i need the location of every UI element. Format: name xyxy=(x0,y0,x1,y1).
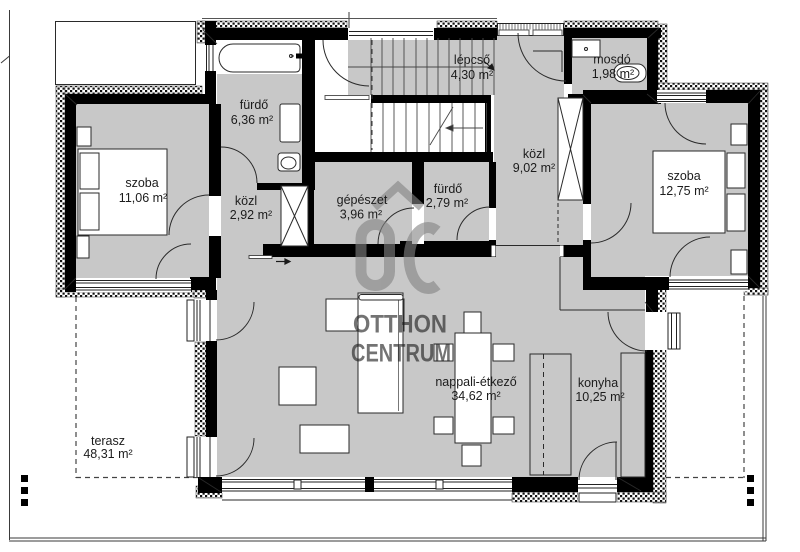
svg-text:fürdő: fürdő xyxy=(240,98,269,112)
svg-text:2,79 m²: 2,79 m² xyxy=(426,196,468,210)
svg-text:gépészet: gépészet xyxy=(337,193,388,207)
svg-text:1,98 m²: 1,98 m² xyxy=(592,67,634,81)
svg-text:OTTHON: OTTHON xyxy=(353,311,447,339)
svg-text:közl: közl xyxy=(523,147,545,161)
svg-text:konyha: konyha xyxy=(578,376,618,390)
svg-text:6,36 m²: 6,36 m² xyxy=(231,113,273,127)
svg-text:szoba: szoba xyxy=(125,176,158,190)
svg-text:nappali-étkező: nappali-étkező xyxy=(435,375,516,389)
svg-text:34,62 m²: 34,62 m² xyxy=(451,389,500,403)
svg-text:11,06 m²: 11,06 m² xyxy=(119,191,167,205)
svg-text:szoba: szoba xyxy=(667,169,700,183)
svg-text:közl: közl xyxy=(235,194,257,208)
svg-text:4,30 m²: 4,30 m² xyxy=(451,68,493,82)
svg-text:12,75 m²: 12,75 m² xyxy=(659,184,708,198)
svg-text:10,25 m²: 10,25 m² xyxy=(575,390,624,404)
svg-text:CENTRUM: CENTRUM xyxy=(351,340,451,368)
svg-text:9,02 m²: 9,02 m² xyxy=(513,161,555,175)
svg-text:mosdó: mosdó xyxy=(593,53,631,67)
svg-text:fürdő: fürdő xyxy=(434,182,463,196)
svg-text:48,31 m²: 48,31 m² xyxy=(83,447,132,461)
svg-text:3,96 m²: 3,96 m² xyxy=(340,208,382,222)
svg-text:lépcső: lépcső xyxy=(454,53,490,67)
svg-text:2,92 m²: 2,92 m² xyxy=(230,208,272,222)
svg-text:terasz: terasz xyxy=(91,434,125,448)
